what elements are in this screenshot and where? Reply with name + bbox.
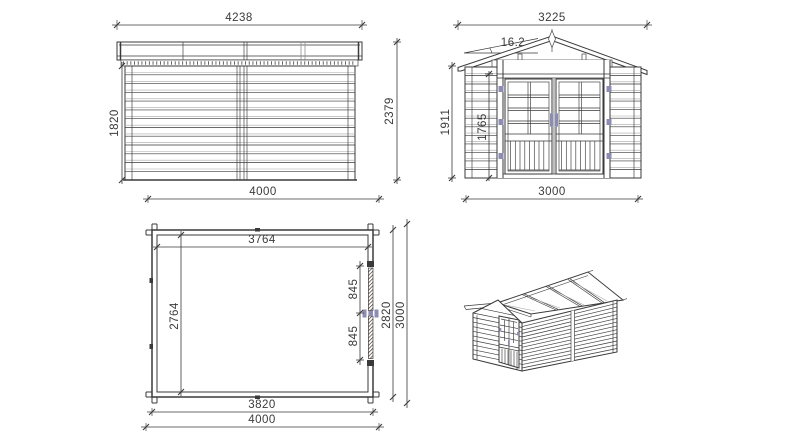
drawing-canvas: 4238 1820 2379 4000 3225 bbox=[0, 0, 794, 446]
door-handle-icon bbox=[555, 113, 558, 127]
dim-wall-height: 1820 bbox=[109, 62, 125, 184]
double-door bbox=[497, 60, 612, 178]
dim-overall-height: 2379 bbox=[384, 38, 401, 184]
dim-label: 3000 bbox=[538, 186, 566, 198]
door-leaf-plan bbox=[368, 268, 373, 311]
hinge-icon bbox=[607, 119, 612, 125]
dim-eave-height: 1911 bbox=[440, 62, 456, 182]
side-wall-strip-fill bbox=[571, 310, 575, 361]
door-handle-icon bbox=[363, 310, 367, 318]
wall-tab bbox=[255, 228, 260, 232]
door-leaf-right bbox=[556, 79, 603, 174]
dim-label: 4000 bbox=[248, 414, 276, 426]
dim-wall-depth: 2820 bbox=[381, 225, 396, 402]
hinge-icon bbox=[607, 153, 612, 159]
dim-label: 1911 bbox=[440, 109, 452, 136]
door-jamb bbox=[367, 261, 374, 267]
door-leaf-plan bbox=[368, 316, 373, 359]
side-elevation-view: 4238 1820 2379 4000 bbox=[109, 12, 401, 203]
dim-label: 2820 bbox=[381, 301, 393, 329]
hinge-icon bbox=[517, 332, 519, 335]
dim-label: 845 bbox=[348, 279, 360, 300]
dim-label: 3764 bbox=[248, 234, 276, 246]
dim-label: 4000 bbox=[249, 186, 277, 198]
dim-label: 1765 bbox=[477, 113, 489, 141]
perspective-view bbox=[464, 270, 627, 371]
dim-label: 2379 bbox=[384, 97, 396, 125]
door-handle-icon bbox=[368, 311, 373, 316]
wall-tab bbox=[150, 344, 154, 349]
dim-overall-width: 4000 bbox=[141, 414, 384, 431]
dim-roof-width: 3225 bbox=[453, 12, 652, 30]
dim-label: 3000 bbox=[395, 301, 407, 329]
dim-label: 845 bbox=[348, 326, 360, 347]
dim-label: 2764 bbox=[169, 302, 181, 330]
finial bbox=[549, 31, 556, 48]
dim-wall-length: 4000 bbox=[143, 186, 384, 203]
dim-label: 3225 bbox=[538, 12, 566, 24]
dim-label: 1820 bbox=[109, 109, 121, 137]
wall-tab bbox=[150, 278, 154, 283]
door-handle-icon bbox=[375, 310, 379, 318]
hinge-icon bbox=[499, 86, 504, 92]
dim-overall-depth: 3000 bbox=[395, 219, 410, 408]
front-elevation-view: 3225 16.2 bbox=[440, 12, 652, 203]
perspective-door bbox=[499, 316, 519, 368]
rafter-end-left bbox=[518, 54, 522, 60]
door-handle-icon bbox=[508, 340, 510, 345]
door-handle-icon bbox=[550, 113, 553, 127]
door-leaf-left bbox=[505, 79, 552, 174]
hinge-icon bbox=[607, 86, 612, 92]
dim-label: 4238 bbox=[225, 12, 253, 24]
drawing-sheet: 4238 1820 2379 4000 3225 bbox=[0, 0, 794, 446]
hinge-icon bbox=[499, 119, 504, 125]
hinge-icon bbox=[499, 153, 504, 159]
dim-roof-length: 4238 bbox=[112, 12, 367, 30]
rafter-end-right bbox=[582, 54, 586, 60]
plan-wall-inner bbox=[157, 235, 368, 392]
floor-plan-view: 3764 2764 845 845 2820 3000 bbox=[141, 219, 410, 431]
dim-label: 3820 bbox=[248, 399, 276, 411]
hinge-icon bbox=[499, 328, 501, 331]
door-jamb bbox=[367, 360, 374, 366]
dim-wall-width: 3000 bbox=[461, 186, 643, 203]
